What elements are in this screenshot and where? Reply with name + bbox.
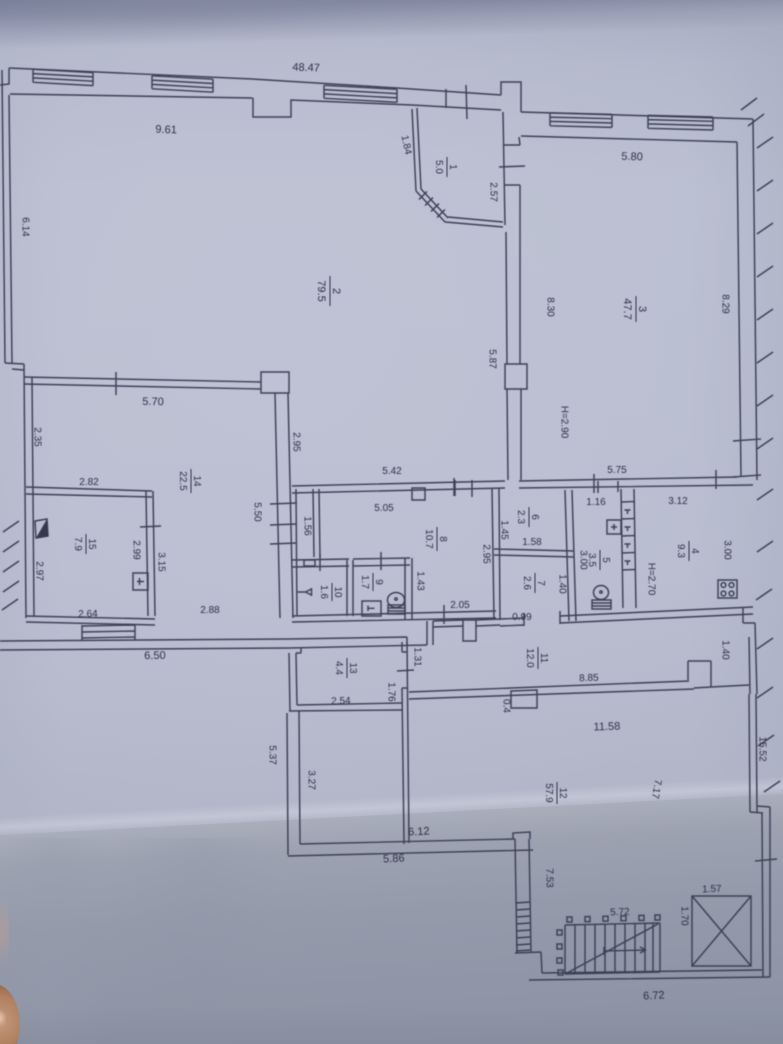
svg-text:2.3: 2.3 <box>515 510 526 524</box>
svg-text:H=2.70: H=2.70 <box>646 563 657 596</box>
svg-text:1.57: 1.57 <box>702 884 722 896</box>
svg-text:2.99: 2.99 <box>131 540 142 560</box>
svg-text:6.14: 6.14 <box>20 217 31 237</box>
svg-text:8.30: 8.30 <box>545 297 556 317</box>
svg-text:6.50: 6.50 <box>144 650 166 662</box>
svg-text:1.76: 1.76 <box>386 682 397 702</box>
svg-text:9.61: 9.61 <box>155 124 177 137</box>
svg-text:6.72: 6.72 <box>643 989 665 1002</box>
svg-text:3.15: 3.15 <box>156 552 167 572</box>
svg-text:0.99: 0.99 <box>512 612 532 623</box>
svg-text:5.50: 5.50 <box>252 502 263 522</box>
svg-text:9.3: 9.3 <box>675 544 686 558</box>
svg-text:1.45: 1.45 <box>499 520 510 540</box>
svg-text:15: 15 <box>86 538 97 550</box>
svg-text:8.29: 8.29 <box>720 294 731 314</box>
svg-text:12: 12 <box>557 787 568 799</box>
svg-text:14: 14 <box>191 475 202 487</box>
svg-text:1.31: 1.31 <box>412 647 423 667</box>
svg-text:10.7: 10.7 <box>423 529 434 549</box>
svg-text:2.95: 2.95 <box>481 544 492 564</box>
svg-text:48.47: 48.47 <box>292 62 320 75</box>
svg-text:5.80: 5.80 <box>621 151 643 164</box>
svg-text:1.7: 1.7 <box>359 575 370 589</box>
svg-text:5.86: 5.86 <box>383 852 405 865</box>
svg-text:12.0: 12.0 <box>524 648 535 668</box>
svg-text:3.27: 3.27 <box>306 770 317 790</box>
svg-text:5.37: 5.37 <box>267 745 278 765</box>
svg-text:9: 9 <box>373 579 384 585</box>
svg-text:7.53: 7.53 <box>544 868 555 888</box>
svg-text:3.5: 3.5 <box>586 553 597 567</box>
svg-text:3: 3 <box>636 306 648 312</box>
svg-text:2.95: 2.95 <box>291 432 302 452</box>
svg-text:5.05: 5.05 <box>374 503 394 514</box>
svg-text:4: 4 <box>689 548 700 554</box>
svg-text:11: 11 <box>538 653 549 664</box>
svg-text:1.6: 1.6 <box>318 585 329 599</box>
svg-text:2.35: 2.35 <box>32 427 43 447</box>
svg-text:7: 7 <box>535 580 546 586</box>
svg-text:3.12: 3.12 <box>668 496 688 507</box>
svg-text:2.88: 2.88 <box>200 605 220 616</box>
svg-text:2: 2 <box>330 288 342 294</box>
svg-text:2.57: 2.57 <box>488 182 499 202</box>
svg-text:8.85: 8.85 <box>579 673 599 685</box>
svg-text:5.0: 5.0 <box>433 160 444 174</box>
svg-text:3.00: 3.00 <box>722 540 733 560</box>
svg-text:H=2.90: H=2.90 <box>559 406 570 439</box>
svg-text:1: 1 <box>447 164 458 170</box>
svg-text:2.64: 2.64 <box>78 609 98 620</box>
svg-text:1.16: 1.16 <box>586 497 606 508</box>
svg-text:0.4: 0.4 <box>501 699 512 713</box>
svg-text:6.12: 6.12 <box>408 825 430 838</box>
svg-text:22.5: 22.5 <box>177 471 188 491</box>
svg-text:5: 5 <box>600 557 611 563</box>
svg-text:5.87: 5.87 <box>487 349 498 369</box>
svg-text:10: 10 <box>332 586 343 598</box>
svg-text:47.7: 47.7 <box>621 298 633 319</box>
svg-text:1.56: 1.56 <box>302 516 313 536</box>
svg-text:79.5: 79.5 <box>315 280 327 301</box>
svg-text:57.9: 57.9 <box>543 783 554 803</box>
svg-text:2.05: 2.05 <box>450 600 470 611</box>
svg-text:1.43: 1.43 <box>415 571 426 591</box>
svg-text:2.6: 2.6 <box>521 576 532 590</box>
svg-text:1.58: 1.58 <box>522 537 542 548</box>
svg-text:5.42: 5.42 <box>382 466 402 477</box>
svg-text:15.52: 15.52 <box>757 736 768 761</box>
svg-text:11.58: 11.58 <box>593 721 620 734</box>
svg-text:5.75: 5.75 <box>607 465 627 476</box>
svg-text:6: 6 <box>529 514 540 520</box>
svg-text:2.54: 2.54 <box>331 696 351 708</box>
svg-text:7.9: 7.9 <box>72 537 83 551</box>
svg-text:5.70: 5.70 <box>142 396 164 408</box>
svg-text:1.84: 1.84 <box>399 134 414 156</box>
svg-text:2.82: 2.82 <box>79 477 99 488</box>
svg-text:13: 13 <box>347 662 358 674</box>
svg-text:5.72: 5.72 <box>610 907 630 919</box>
svg-text:1.40: 1.40 <box>557 574 568 594</box>
svg-text:1.40: 1.40 <box>720 640 731 660</box>
svg-text:1.70: 1.70 <box>679 906 690 926</box>
svg-text:4.4: 4.4 <box>333 661 344 675</box>
svg-text:2.97: 2.97 <box>34 561 45 581</box>
svg-text:8: 8 <box>437 536 448 542</box>
svg-text:7.17: 7.17 <box>649 778 663 800</box>
